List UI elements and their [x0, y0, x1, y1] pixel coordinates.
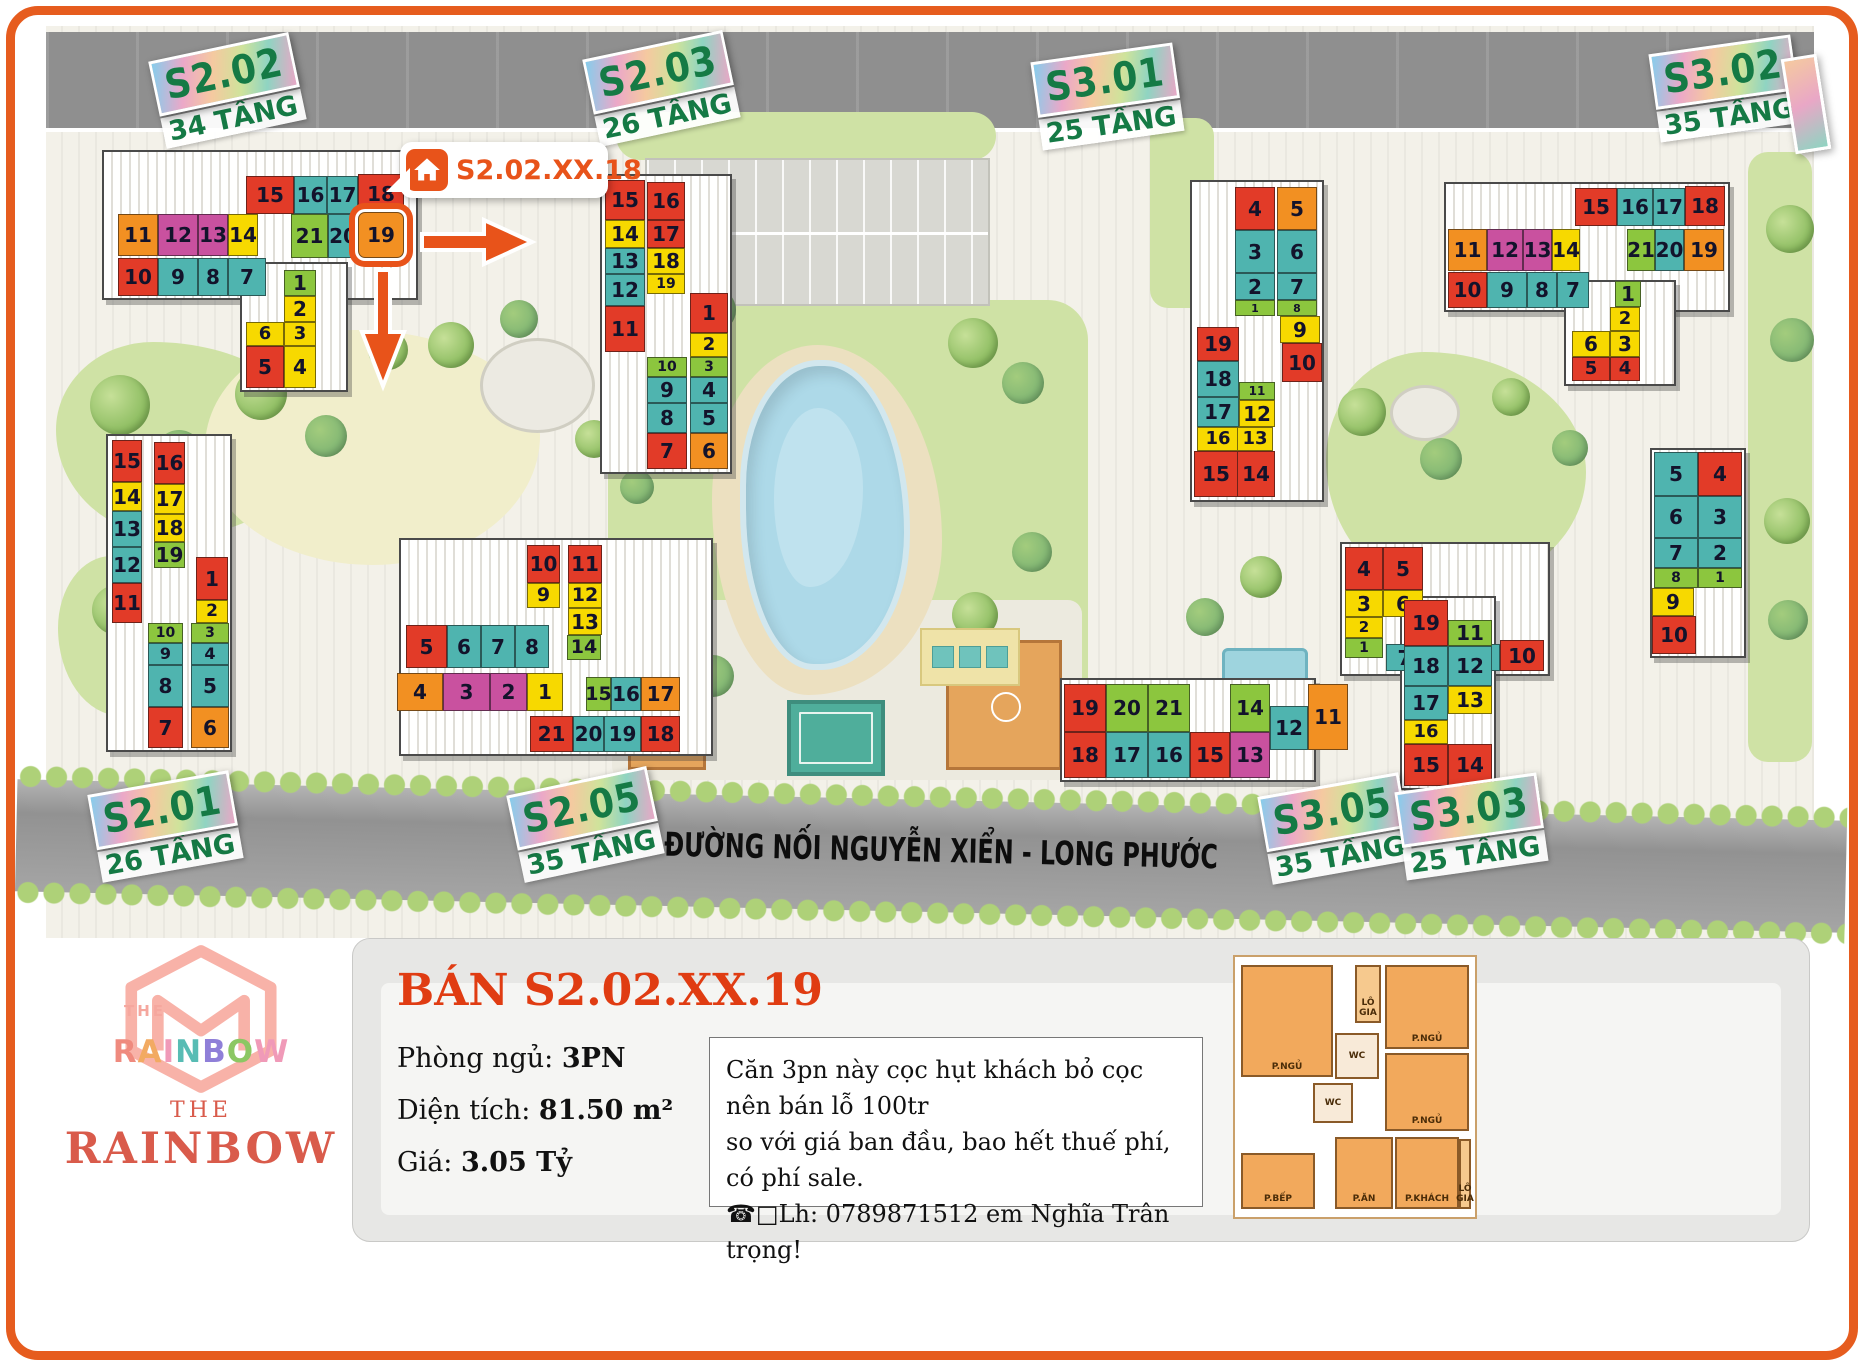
unit-cell-S2.02-21: 21 — [291, 214, 328, 258]
unit-cell-S2.05-13: 13 — [568, 608, 602, 635]
unit-cell-S3.01-9: 9 — [1280, 316, 1320, 343]
unit-cell-S2.05-11: 11 — [568, 545, 602, 583]
unit-cell-S3.02-18: 18 — [1685, 186, 1725, 226]
tree-icon — [620, 470, 654, 504]
tree-icon — [1186, 598, 1224, 636]
unit-cell-S3.03-11: 11 — [1448, 620, 1492, 646]
unit-cell-S2.03-8: 8 — [647, 403, 687, 433]
unit-cell-S2.01-9: 9 — [148, 643, 183, 665]
field-row: Giá: 3.05 Tỷ — [397, 1147, 673, 1178]
tree-icon — [428, 322, 474, 368]
unit-cell-S3.03-8: 8 — [1654, 568, 1698, 588]
note-line: ☎□Lh: 0789871512 em Nghĩa Trân trọng! — [726, 1196, 1186, 1268]
unit-cell-S2.02-8: 8 — [198, 258, 228, 296]
unit-cell-S3.01-16: 16 — [1197, 427, 1239, 451]
tree-icon — [1012, 532, 1052, 572]
unit-cell-S3.02-16: 16 — [1617, 188, 1653, 226]
unit-cell-S2.05-19: 19 — [604, 716, 641, 752]
unit-cell-S2.01-5: 5 — [191, 665, 229, 707]
unit-cell-S3.02-2: 2 — [1610, 307, 1640, 331]
unit-cell-S3.02-10: 10 — [1448, 272, 1487, 308]
unit-cell-S2.02-19: 19 — [358, 212, 404, 258]
field-value: 3.05 Tỷ — [461, 1147, 572, 1178]
unit-cell-S3.01-17: 17 — [1197, 397, 1239, 427]
unit-cell-S3.02-11: 11 — [1448, 229, 1487, 271]
unit-cell-S2.02-20: 20 — [328, 214, 358, 258]
room-P.NGỦ: P.NGỦ — [1241, 965, 1333, 1077]
page: { "map": { "road_label": "ĐƯỜNG NỐI NGUY… — [0, 0, 1864, 1366]
field-label: Giá: — [397, 1147, 461, 1178]
unit-cell-S2.03-11: 11 — [605, 306, 645, 352]
unit-cell-S3.01-1: 1 — [1235, 300, 1275, 316]
unit-cell-S2.01-8: 8 — [148, 665, 183, 707]
logo-rainbow-letter: R — [113, 1034, 138, 1070]
unit-cell-S2.05-1: 1 — [527, 673, 563, 711]
unit-cell-S3.01-14: 14 — [1237, 451, 1275, 497]
unit-cell-S3.03-16: 16 — [1404, 720, 1448, 744]
logo: THE RAINBOW THE RAINBOW — [60, 942, 342, 1242]
unit-cell-S3.01-18: 18 — [1197, 361, 1239, 397]
tree-icon — [1002, 362, 1044, 404]
unit-cell-S2.02-9: 9 — [158, 258, 198, 296]
arrow-down-icon — [356, 266, 410, 392]
unit-cell-S3.02-3: 3 — [1610, 331, 1640, 357]
tree-icon — [1492, 378, 1530, 416]
unit-cell-S3.05-1: 1 — [1345, 638, 1383, 658]
field-value: 81.50 m² — [539, 1095, 673, 1126]
logo-rainbow-letter: B — [202, 1034, 227, 1070]
unit-cell-S2.02-5: 5 — [246, 346, 284, 388]
note-line: so với giá ban đầu, bao hết thuế phí, có… — [726, 1124, 1186, 1196]
unit-cell-S3.03-9: 9 — [1652, 588, 1694, 616]
unit-cell-S3.01-2: 2 — [1235, 273, 1275, 300]
unit-cell-S3.05-16: 16 — [1148, 732, 1190, 778]
unit-cell-S2.02-14: 14 — [228, 214, 258, 256]
unit-cell-S3.02-14: 14 — [1552, 229, 1580, 271]
unit-cell-S2.03-1: 1 — [690, 293, 728, 333]
unit-cell-S3.01-19: 19 — [1197, 327, 1239, 361]
unit-cell-S2.02-15: 15 — [246, 176, 294, 214]
room-P.ĂN: P.ĂN — [1335, 1137, 1393, 1209]
unit-cell-S2.02-2: 2 — [284, 296, 316, 322]
unit-cell-S3.05-11: 11 — [1308, 684, 1348, 750]
unit-cell-S2.05-7: 7 — [481, 625, 515, 668]
unit-cell-S2.03-19: 19 — [647, 274, 685, 294]
unit-cell-S3.01-15: 15 — [1194, 451, 1238, 497]
site-map: 1516171811121314212019109871263541516141… — [46, 26, 1814, 938]
room-WC: WC — [1335, 1033, 1379, 1079]
unit-cell-S3.01-11: 11 — [1239, 382, 1275, 400]
unit-cell-S3.01-4: 4 — [1235, 187, 1275, 230]
logo-glyph-icon — [118, 944, 284, 1098]
arrow-right-icon — [418, 216, 538, 268]
tree-icon — [90, 375, 150, 435]
unit-cell-S3.03-12: 12 — [1448, 646, 1492, 686]
logo-rainbow-letter: I — [163, 1034, 176, 1070]
room-P.NGỦ: P.NGỦ — [1385, 1053, 1469, 1131]
unit-cell-S3.02-7: 7 — [1557, 272, 1589, 308]
tree-icon — [1766, 205, 1814, 253]
pond — [1390, 385, 1460, 441]
logo-brand: RAINBOW — [60, 1124, 342, 1174]
unit-cell-S3.03-13: 13 — [1448, 686, 1492, 714]
unit-cell-S3.02-5: 5 — [1572, 357, 1610, 381]
unit-cell-S2.05-17: 17 — [641, 677, 680, 711]
unit-cell-S3.03-19: 19 — [1404, 600, 1448, 646]
logo-the-top: THE — [124, 1002, 166, 1020]
unit-cell-S2.01-7: 7 — [148, 707, 183, 748]
unit-cell-S3.05-14: 14 — [1230, 684, 1270, 732]
unit-cell-S2.05-18: 18 — [641, 716, 680, 752]
unit-cell-S3.01-3: 3 — [1235, 230, 1275, 273]
unit-cell-S3.05-20: 20 — [1106, 684, 1148, 732]
tree-icon — [1770, 318, 1814, 362]
unit-cell-S3.02-20: 20 — [1655, 229, 1684, 271]
unit-cell-S3.03-6: 6 — [1654, 496, 1698, 538]
tree-icon — [1552, 430, 1588, 466]
unit-cell-S2.01-4: 4 — [191, 643, 229, 665]
unit-cell-S3.05-10: 10 — [1500, 640, 1544, 671]
unit-cell-S3.03-10: 10 — [1652, 616, 1696, 654]
unit-cell-S3.03-5: 5 — [1654, 452, 1698, 496]
unit-cell-S3.02-17: 17 — [1653, 188, 1685, 226]
note-line: Căn 3pn này cọc hụt khách bỏ cọc nên bán… — [726, 1052, 1186, 1124]
unit-cell-S3.05-5: 5 — [1383, 547, 1423, 590]
unit-cell-S2.01-13: 13 — [112, 511, 142, 547]
unit-cell-S2.02-13: 13 — [198, 214, 228, 256]
unit-cell-S2.05-20: 20 — [573, 716, 604, 752]
unit-cell-S2.01-14: 14 — [112, 482, 142, 511]
unit-cell-S3.03-18: 18 — [1404, 646, 1448, 686]
unit-cell-S2.03-16: 16 — [647, 182, 685, 220]
unit-cell-S2.05-15: 15 — [586, 677, 611, 711]
unit-cell-S2.01-16: 16 — [154, 442, 185, 484]
unit-cell-S2.02-3: 3 — [284, 322, 316, 346]
tree-icon — [1338, 388, 1386, 436]
unit-cell-S3.02-8: 8 — [1527, 272, 1557, 308]
unit-cell-S2.03-5: 5 — [690, 403, 728, 433]
room-P.BẾP: P.BẾP — [1241, 1153, 1315, 1209]
unit-cell-S2.01-2: 2 — [196, 600, 228, 623]
unit-cell-S2.03-6: 6 — [690, 433, 728, 469]
unit-cell-S2.05-16: 16 — [611, 677, 641, 711]
unit-cell-S3.02-9: 9 — [1487, 272, 1527, 308]
unit-cell-S2.05-4: 4 — [397, 673, 443, 711]
logo-rainbow-letter: N — [175, 1034, 202, 1070]
unit-cell-S2.05-10: 10 — [527, 545, 560, 583]
unit-cell-S2.02-10: 10 — [118, 258, 158, 296]
field-value: 3PN — [562, 1043, 626, 1074]
logo-the-bottom: THE — [60, 1098, 342, 1123]
unit-cell-S2.05-3: 3 — [443, 673, 490, 711]
info-panel: BÁN S2.02.XX.19 Phòng ngủ: 3PNDiện tích:… — [352, 938, 1810, 1242]
unit-cell-S2.03-9: 9 — [647, 377, 687, 403]
unit-cell-S3.01-10: 10 — [1282, 343, 1322, 382]
unit-cell-S2.01-11: 11 — [112, 583, 142, 623]
unit-cell-S3.01-8: 8 — [1277, 300, 1317, 316]
unit-cell-S2.01-18: 18 — [154, 514, 185, 542]
unit-cell-S3.02-21: 21 — [1627, 229, 1655, 271]
tree-icon — [305, 415, 347, 457]
unit-cell-S2.05-12: 12 — [568, 583, 602, 608]
unit-cell-S3.02-1: 1 — [1615, 281, 1641, 307]
unit-cell-S2.02-17: 17 — [327, 176, 358, 214]
note-box: Căn 3pn này cọc hụt khách bỏ cọc nên bán… — [709, 1037, 1203, 1207]
unit-cell-S2.05-9: 9 — [527, 583, 560, 608]
unit-cell-S2.03-13: 13 — [605, 248, 645, 274]
unit-cell-S2.02-7: 7 — [228, 258, 266, 296]
unit-cell-S3.02-12: 12 — [1487, 229, 1523, 271]
floor-plan: P.NGỦLÔ GIAP.NGỦWCWCP.NGỦP.ĂNP.KHÁCHP.BẾ… — [1233, 955, 1477, 1219]
marker-bubble: S2.02.XX.18 — [400, 142, 608, 198]
tennis-court — [787, 700, 885, 776]
room-WC: WC — [1313, 1083, 1353, 1123]
tree-icon — [1768, 600, 1808, 640]
home-icon — [406, 149, 448, 191]
logo-rainbow-letter: W — [254, 1034, 289, 1070]
unit-cell-S2.03-3: 3 — [690, 357, 728, 377]
tree-icon — [1420, 438, 1462, 480]
unit-cell-S3.03-3: 3 — [1698, 496, 1742, 538]
unit-cell-S2.02-16: 16 — [294, 176, 327, 214]
unit-cell-S2.05-5: 5 — [406, 625, 447, 668]
unit-cell-S2.01-17: 17 — [154, 484, 185, 514]
unit-cell-S3.05-15: 15 — [1190, 732, 1230, 778]
unit-cell-S2.01-1: 1 — [196, 557, 228, 600]
unit-cell-S2.03-15: 15 — [605, 180, 645, 220]
cabana-row — [920, 628, 1020, 686]
unit-cell-S2.02-4: 4 — [284, 346, 316, 388]
room-LÔ GIA: LÔ GIA — [1355, 965, 1381, 1023]
unit-cell-S3.02-4: 4 — [1610, 357, 1640, 381]
unit-cell-S3.03-15: 15 — [1404, 744, 1448, 786]
room-P.NGỦ: P.NGỦ — [1385, 965, 1469, 1049]
unit-cell-S3.03-2: 2 — [1698, 538, 1742, 568]
unit-cell-S2.03-2: 2 — [690, 333, 728, 357]
logo-rainbow-letter: A — [138, 1034, 163, 1070]
unit-cell-S3.05-2: 2 — [1345, 617, 1383, 638]
unit-cell-S2.05-8: 8 — [515, 625, 549, 668]
unit-cell-S2.02-6: 6 — [246, 322, 284, 346]
unit-cell-S3.02-13: 13 — [1523, 229, 1552, 271]
unit-cell-S2.05-6: 6 — [447, 625, 481, 668]
room-LÔ GIA: LÔ GIA — [1459, 1139, 1471, 1209]
unit-cell-S2.03-7: 7 — [647, 433, 687, 469]
unit-cell-S3.01-5: 5 — [1277, 187, 1317, 230]
unit-cell-S2.03-10: 10 — [647, 357, 687, 377]
field-row: Phòng ngủ: 3PN — [397, 1043, 673, 1074]
logo-rainbow-word: RAINBOW — [60, 1034, 342, 1070]
unit-cell-S2.01-19: 19 — [154, 542, 185, 568]
unit-cell-S3.05-18: 18 — [1064, 732, 1106, 778]
unit-cell-S2.02-11: 11 — [118, 214, 158, 256]
unit-cell-S2.01-12: 12 — [112, 547, 142, 583]
unit-cell-S2.03-18: 18 — [647, 248, 685, 274]
tree-icon — [948, 318, 998, 368]
unit-cell-S2.03-14: 14 — [605, 220, 645, 248]
unit-cell-S3.01-7: 7 — [1277, 273, 1317, 300]
field-label: Phòng ngủ: — [397, 1043, 562, 1074]
unit-cell-S3.01-12: 12 — [1239, 400, 1275, 427]
unit-cell-S3.05-17: 17 — [1106, 732, 1148, 778]
unit-cell-S2.03-17: 17 — [647, 220, 685, 248]
tree-icon — [1240, 556, 1282, 598]
unit-cell-S3.02-6: 6 — [1572, 331, 1610, 357]
unit-cell-S3.03-7: 7 — [1654, 538, 1698, 568]
panel-title: BÁN S2.02.XX.19 — [397, 965, 823, 1016]
unit-cell-S2.03-12: 12 — [605, 274, 645, 306]
unit-cell-S3.05-12: 12 — [1270, 706, 1308, 750]
unit-cell-S3.03-1: 1 — [1698, 568, 1742, 588]
unit-cell-S2.05-14: 14 — [567, 635, 601, 660]
field-list: Phòng ngủ: 3PNDiện tích: 81.50 m²Giá: 3.… — [397, 1043, 673, 1199]
unit-cell-S2.02-12: 12 — [158, 214, 198, 256]
unit-cell-S2.01-10: 10 — [148, 623, 183, 643]
unit-cell-S2.05-21: 21 — [530, 716, 573, 752]
unit-cell-S2.02-1: 1 — [284, 270, 316, 296]
tree-icon — [500, 300, 538, 338]
unit-cell-S3.01-6: 6 — [1277, 230, 1317, 273]
field-label: Diện tích: — [397, 1095, 539, 1126]
unit-cell-S2.01-3: 3 — [191, 623, 229, 643]
unit-cell-S3.03-17: 17 — [1404, 686, 1448, 720]
unit-cell-S2.01-6: 6 — [191, 707, 229, 748]
unit-cell-S2.03-4: 4 — [690, 377, 728, 403]
unit-cell-S2.01-15: 15 — [112, 440, 142, 482]
unit-cell-S3.03-4: 4 — [1698, 452, 1742, 496]
road-label: ĐƯỜNG NỐI NGUYỄN XIỂN - LONG PHƯỚC — [664, 825, 1218, 876]
field-row: Diện tích: 81.50 m² — [397, 1095, 673, 1126]
tree-icon — [1764, 498, 1810, 544]
unit-cell-S3.05-21: 21 — [1148, 684, 1190, 732]
unit-cell-S3.02-19: 19 — [1684, 229, 1724, 271]
unit-cell-S3.02-15: 15 — [1575, 188, 1617, 226]
marker-label: S2.02.XX.18 — [456, 155, 642, 186]
logo-rainbow-letter: O — [227, 1034, 254, 1070]
unit-cell-S3.05-3: 3 — [1345, 590, 1383, 617]
unit-cell-S2.05-2: 2 — [490, 673, 527, 711]
pond — [480, 338, 595, 433]
unit-cell-S3.05-13: 13 — [1230, 732, 1270, 778]
unit-cell-S3.01-13: 13 — [1237, 427, 1273, 451]
unit-cell-S3.05-4: 4 — [1345, 547, 1383, 590]
road-bottom: ĐƯỜNG NỐI NGUYỄN XIỂN - LONG PHƯỚC — [15, 779, 1847, 932]
unit-cell-S3.05-19: 19 — [1064, 684, 1106, 732]
room-P.KHÁCH: P.KHÁCH — [1395, 1137, 1459, 1209]
